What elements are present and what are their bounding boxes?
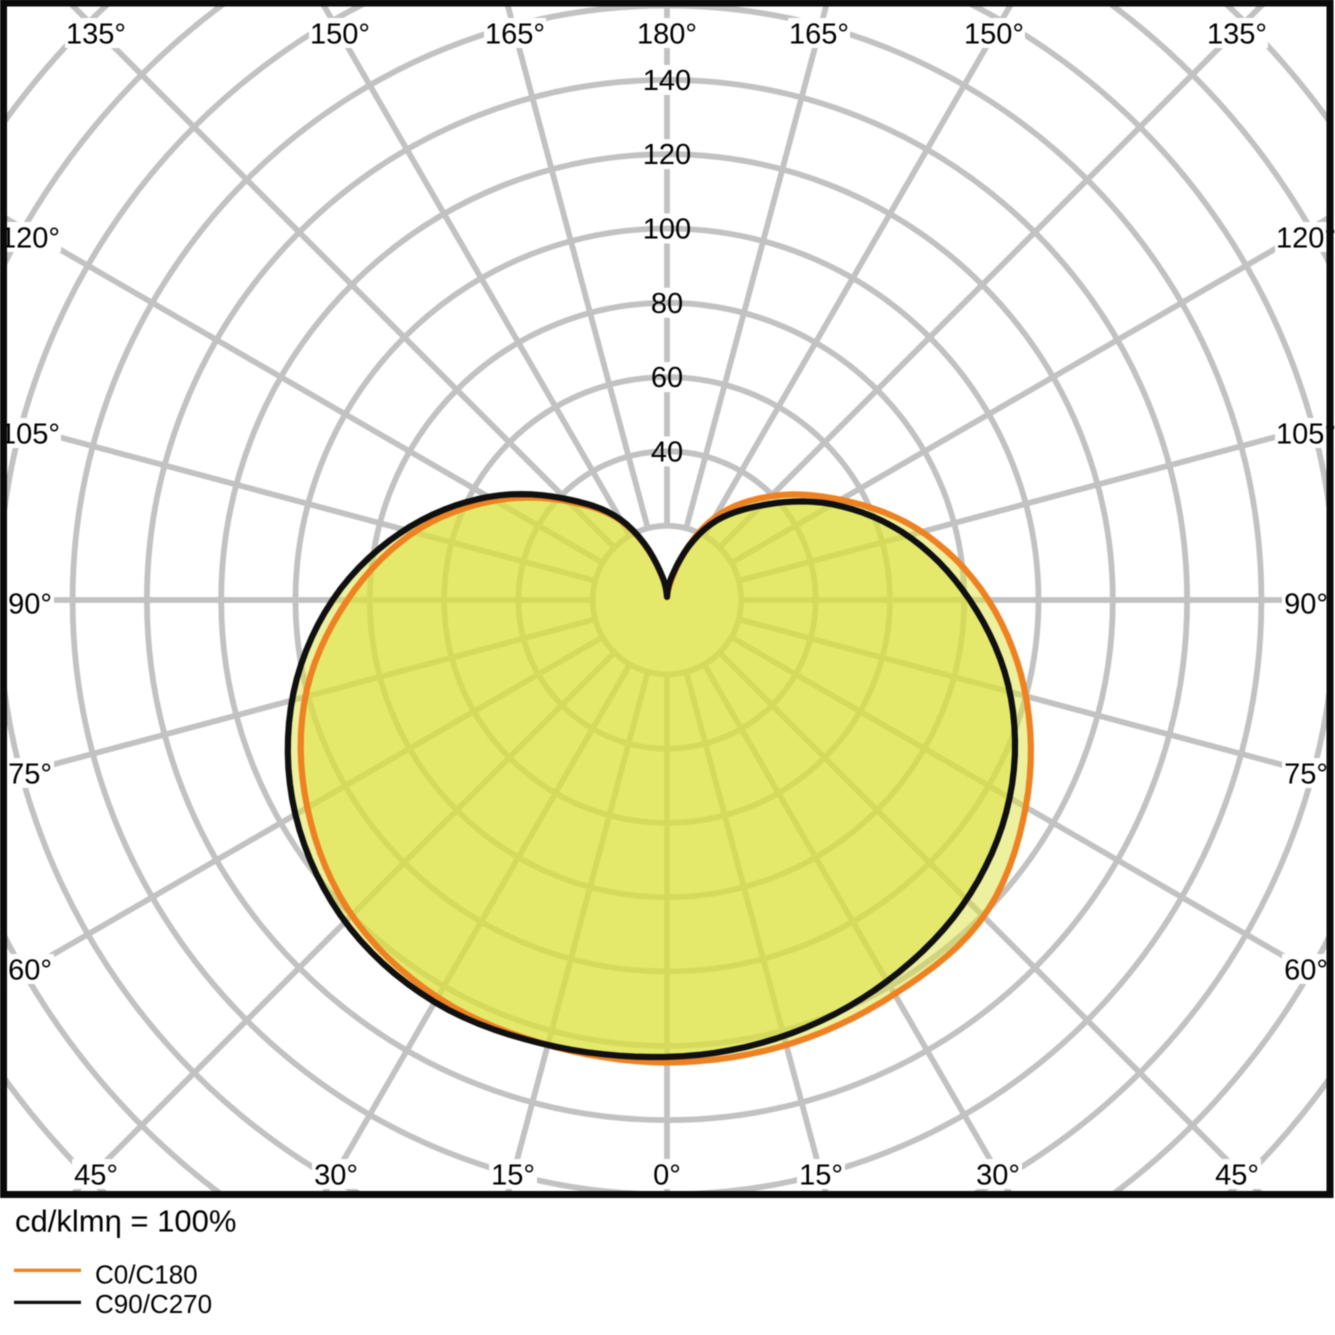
svg-text:90°: 90° xyxy=(1284,589,1328,621)
svg-text:45°: 45° xyxy=(1215,1160,1259,1192)
svg-text:120°: 120° xyxy=(0,223,60,255)
svg-text:135°: 135° xyxy=(66,19,126,51)
svg-text:30°: 30° xyxy=(976,1160,1020,1192)
svg-text:140: 140 xyxy=(643,65,691,97)
svg-text:105°: 105° xyxy=(1276,419,1335,451)
svg-text:150°: 150° xyxy=(310,19,370,51)
svg-text:15°: 15° xyxy=(491,1160,535,1192)
svg-text:30°: 30° xyxy=(314,1160,358,1192)
svg-text:150°: 150° xyxy=(964,19,1024,51)
svg-text:cd/klmη = 100%: cd/klmη = 100% xyxy=(15,1204,236,1239)
svg-text:75°: 75° xyxy=(8,759,52,791)
svg-text:15°: 15° xyxy=(799,1160,843,1192)
svg-text:120: 120 xyxy=(643,139,691,171)
svg-text:135°: 135° xyxy=(1207,19,1267,51)
svg-text:60°: 60° xyxy=(1284,955,1328,987)
svg-text:90°: 90° xyxy=(8,589,52,621)
svg-text:100: 100 xyxy=(643,214,691,246)
svg-text:75°: 75° xyxy=(1284,759,1328,791)
svg-text:105°: 105° xyxy=(0,419,60,451)
svg-text:165°: 165° xyxy=(485,19,545,51)
svg-text:60: 60 xyxy=(651,362,683,394)
svg-text:60°: 60° xyxy=(8,955,52,987)
svg-text:80: 80 xyxy=(651,288,683,320)
svg-text:40: 40 xyxy=(651,436,683,468)
svg-text:C90/C270: C90/C270 xyxy=(95,1289,212,1319)
svg-text:165°: 165° xyxy=(789,19,849,51)
svg-text:C0/C180: C0/C180 xyxy=(95,1260,198,1290)
svg-text:0°: 0° xyxy=(653,1160,681,1192)
svg-text:180°: 180° xyxy=(637,19,697,51)
svg-text:45°: 45° xyxy=(74,1160,118,1192)
svg-text:120°: 120° xyxy=(1276,223,1335,255)
